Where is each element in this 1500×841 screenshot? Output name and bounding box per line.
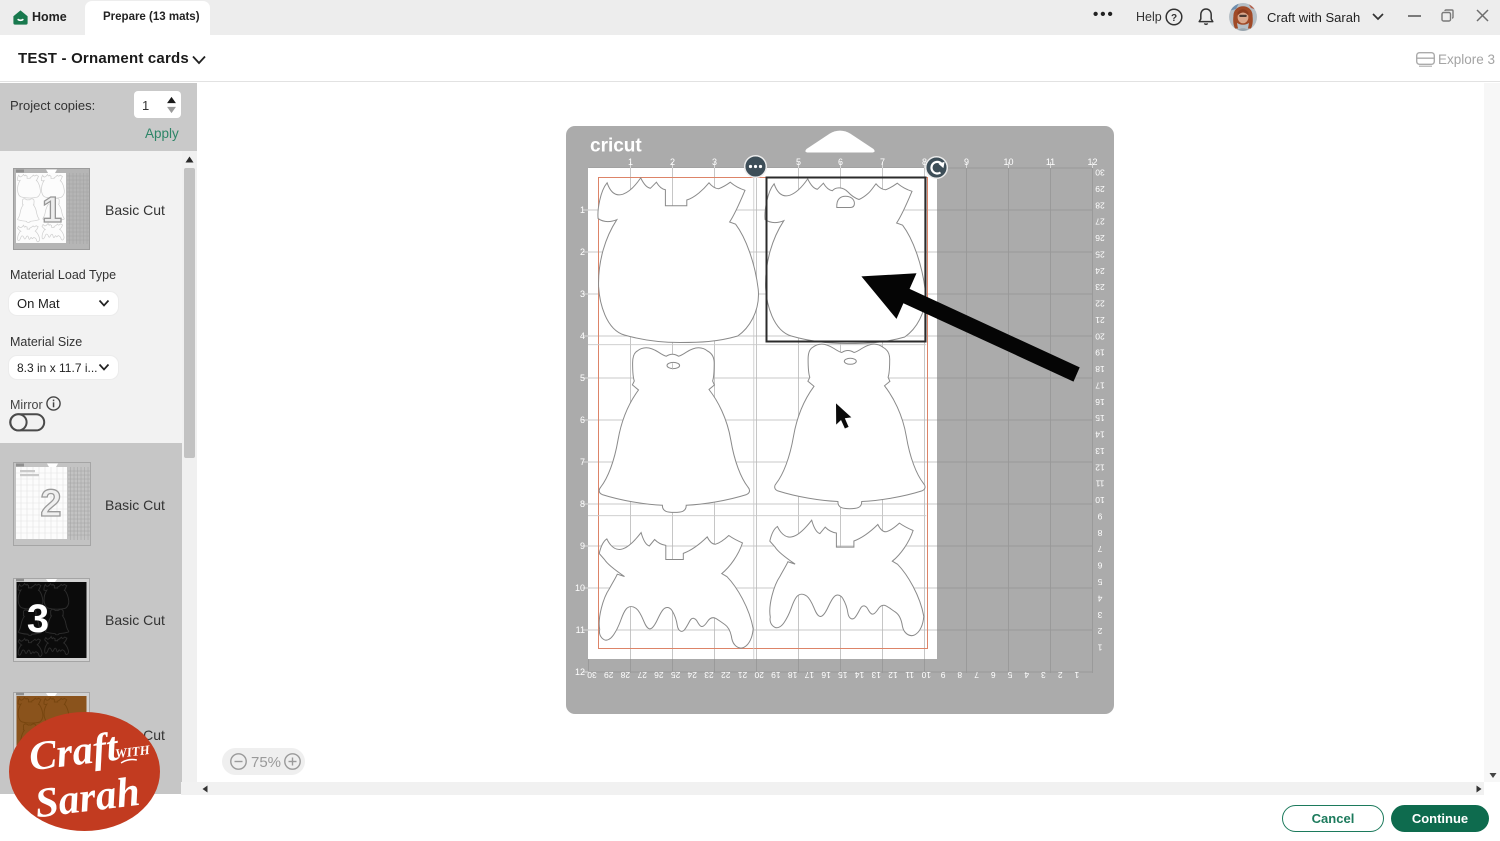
- svg-text:18: 18: [788, 670, 798, 680]
- svg-text:11: 11: [1046, 157, 1055, 167]
- svg-text:7: 7: [880, 157, 885, 167]
- svg-text:9: 9: [940, 670, 945, 680]
- svg-text:11: 11: [576, 625, 585, 635]
- svg-text:23: 23: [1095, 282, 1105, 292]
- svg-text:22: 22: [721, 670, 731, 680]
- svg-text:25: 25: [1095, 249, 1105, 259]
- svg-text:1: 1: [580, 205, 585, 215]
- svg-text:8: 8: [957, 670, 962, 680]
- svg-text:27: 27: [637, 670, 647, 680]
- svg-text:7: 7: [580, 457, 585, 467]
- svg-text:cricut: cricut: [590, 136, 642, 157]
- svg-text:2: 2: [580, 247, 585, 257]
- svg-text:2: 2: [1058, 670, 1063, 680]
- svg-text:12: 12: [888, 670, 898, 680]
- svg-text:28: 28: [620, 670, 630, 680]
- svg-text:16: 16: [1095, 397, 1105, 407]
- svg-text:18: 18: [1095, 364, 1105, 374]
- svg-text:12: 12: [575, 667, 585, 677]
- svg-text:10: 10: [1095, 495, 1105, 505]
- svg-text:22: 22: [1095, 299, 1105, 309]
- svg-text:14: 14: [1095, 430, 1105, 440]
- svg-text:10: 10: [575, 583, 585, 593]
- svg-text:2: 2: [1097, 626, 1102, 636]
- svg-text:15: 15: [838, 670, 848, 680]
- svg-text:17: 17: [1095, 380, 1105, 390]
- svg-text:11: 11: [905, 670, 914, 680]
- svg-text:8: 8: [1097, 528, 1102, 538]
- svg-text:30: 30: [587, 670, 597, 680]
- svg-text:1: 1: [42, 189, 62, 230]
- svg-text:13: 13: [871, 670, 881, 680]
- svg-text:27: 27: [1095, 217, 1105, 227]
- svg-text:25: 25: [671, 670, 681, 680]
- svg-text:6: 6: [580, 415, 585, 425]
- svg-text:6: 6: [1097, 561, 1102, 571]
- svg-text:23: 23: [704, 670, 714, 680]
- svg-text:26: 26: [1095, 233, 1105, 243]
- svg-text:19: 19: [771, 670, 781, 680]
- svg-text:4: 4: [1097, 593, 1102, 603]
- svg-text:29: 29: [604, 670, 614, 680]
- svg-text:7: 7: [974, 670, 979, 680]
- svg-text:20: 20: [754, 670, 764, 680]
- svg-text:14: 14: [855, 670, 865, 680]
- svg-text:6: 6: [991, 670, 996, 680]
- svg-text:17: 17: [804, 670, 814, 680]
- svg-text:19: 19: [1095, 348, 1105, 358]
- svg-text:3: 3: [712, 157, 717, 167]
- svg-text:3: 3: [27, 597, 49, 641]
- svg-text:3: 3: [1041, 670, 1046, 680]
- svg-text:16: 16: [821, 670, 831, 680]
- svg-text:9: 9: [580, 541, 585, 551]
- svg-text:8: 8: [580, 499, 585, 509]
- svg-text:28: 28: [1095, 200, 1105, 210]
- svg-text:1: 1: [1097, 643, 1102, 653]
- svg-text:9: 9: [964, 157, 969, 167]
- svg-text:10: 10: [1003, 157, 1013, 167]
- svg-text:26: 26: [654, 670, 664, 680]
- svg-text:30: 30: [1095, 168, 1105, 178]
- svg-text:13: 13: [1095, 446, 1105, 456]
- svg-text:2: 2: [40, 483, 61, 525]
- svg-text:2: 2: [670, 157, 675, 167]
- svg-text:12: 12: [1087, 157, 1097, 167]
- svg-text:15: 15: [1095, 413, 1105, 423]
- svg-text:5: 5: [1007, 670, 1012, 680]
- svg-text:24: 24: [687, 670, 697, 680]
- svg-text:7: 7: [1097, 544, 1102, 554]
- svg-text:20: 20: [1095, 331, 1105, 341]
- svg-text:3: 3: [580, 289, 585, 299]
- svg-text:1: 1: [1074, 670, 1079, 680]
- svg-text:29: 29: [1095, 184, 1105, 194]
- svg-text:4: 4: [1024, 670, 1029, 680]
- svg-text:4: 4: [580, 331, 585, 341]
- svg-text:24: 24: [1095, 266, 1105, 276]
- svg-text:21: 21: [1095, 315, 1105, 325]
- svg-text:1: 1: [628, 157, 633, 167]
- svg-text:9: 9: [1097, 512, 1102, 522]
- svg-text:3: 3: [1097, 610, 1102, 620]
- svg-text:5: 5: [580, 373, 585, 383]
- svg-text:10: 10: [921, 670, 931, 680]
- svg-text:5: 5: [1097, 577, 1102, 587]
- svg-text:21: 21: [738, 670, 748, 680]
- svg-text:12: 12: [1095, 462, 1105, 472]
- svg-text:?: ?: [1171, 13, 1177, 24]
- svg-text:6: 6: [838, 157, 843, 167]
- svg-text:11: 11: [1095, 479, 1104, 489]
- svg-text:5: 5: [796, 157, 801, 167]
